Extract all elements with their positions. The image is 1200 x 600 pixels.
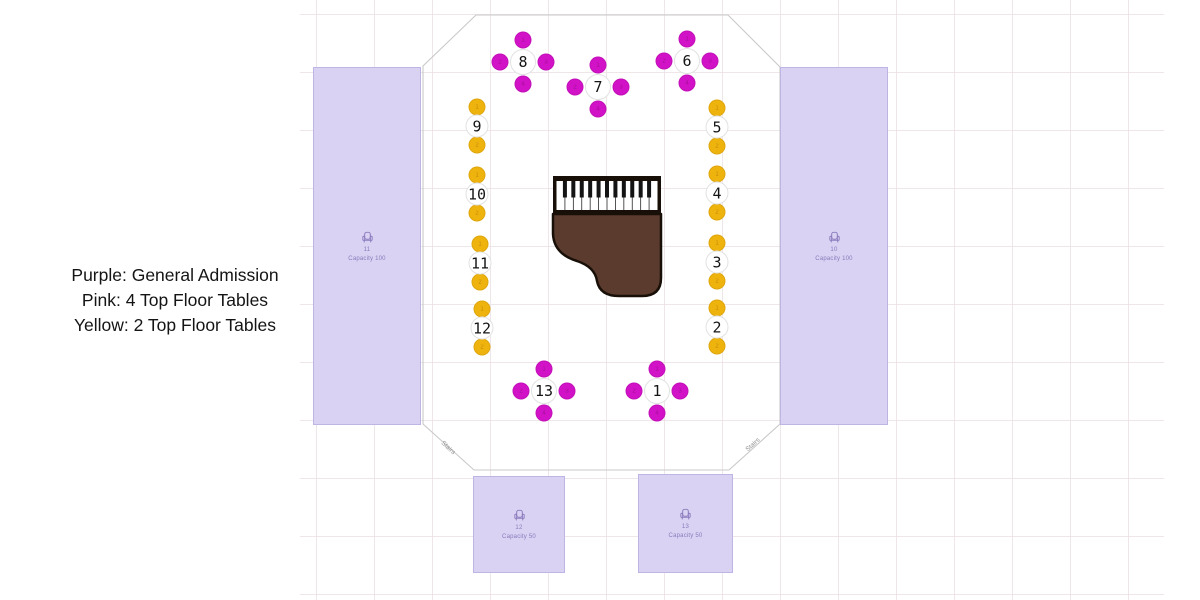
seat-number: 2	[715, 343, 718, 349]
seat-number: 2	[662, 58, 665, 64]
chair-seat[interactable]: 2	[567, 79, 584, 96]
seat-number: 2	[498, 59, 501, 65]
chair-seat[interactable]: 2	[709, 273, 726, 290]
table-circle: 3	[706, 251, 729, 274]
table-number: 10	[468, 185, 486, 203]
seat-number: 3	[678, 388, 681, 394]
seat-number: 1	[715, 305, 718, 311]
chair-seat[interactable]: 4	[679, 75, 696, 92]
seat-number: 1	[478, 241, 481, 247]
chair-seat[interactable]: 1	[469, 167, 486, 184]
seat-number: 3	[708, 58, 711, 64]
table-circle: 5	[706, 116, 729, 139]
venue-map-canvas: Purple: General Admission Pink: 4 Top Fl…	[0, 0, 1200, 600]
table-circle: 7	[585, 74, 611, 100]
table-circle: 9	[466, 115, 489, 138]
table-circle: 6	[674, 48, 700, 74]
seat-number: 2	[573, 84, 576, 90]
seat-number: 2	[715, 143, 718, 149]
chair-seat[interactable]: 1	[469, 99, 486, 116]
chair-seat[interactable]: 3	[672, 383, 689, 400]
seat-number: 1	[715, 105, 718, 111]
seat-number: 1	[480, 306, 483, 312]
table-number: 8	[518, 53, 527, 71]
chair-seat[interactable]: 2	[472, 274, 489, 291]
seat-number: 1	[715, 171, 718, 177]
chair-seat[interactable]: 2	[492, 54, 509, 71]
table-number: 12	[473, 319, 491, 337]
seat-number: 3	[565, 388, 568, 394]
chair-seat[interactable]: 4	[515, 76, 532, 93]
chair-seat[interactable]: 1	[649, 361, 666, 378]
table-circle: 11	[469, 252, 492, 275]
chair-seat[interactable]: 2	[626, 383, 643, 400]
seat-number: 1	[685, 36, 688, 42]
seat-number: 1	[521, 37, 524, 43]
table-number: 5	[712, 118, 721, 136]
seat-number: 3	[544, 59, 547, 65]
chair-seat[interactable]: 4	[536, 405, 553, 422]
chair-seat[interactable]: 3	[702, 53, 719, 70]
chair-seat[interactable]: 2	[709, 204, 726, 221]
seat-number: 2	[632, 388, 635, 394]
chair-seat[interactable]: 2	[656, 53, 673, 70]
chair-seat[interactable]: 3	[538, 54, 555, 71]
chair-seat[interactable]: 1	[590, 57, 607, 74]
table-number: 2	[712, 318, 721, 336]
table-number: 9	[472, 117, 481, 135]
seat-number: 2	[519, 388, 522, 394]
chair-seat[interactable]: 2	[709, 138, 726, 155]
chair-seat[interactable]: 3	[559, 383, 576, 400]
table-circle: 13	[531, 378, 557, 404]
chair-seat[interactable]: 1	[536, 361, 553, 378]
chair-seat[interactable]: 1	[472, 236, 489, 253]
seat-number: 4	[596, 106, 599, 112]
chair-seat[interactable]: 2	[513, 383, 530, 400]
seat-number: 1	[542, 366, 545, 372]
seat-number: 1	[475, 172, 478, 178]
chair-seat[interactable]: 2	[474, 339, 491, 356]
table-number: 4	[712, 184, 721, 202]
seat-number: 2	[715, 278, 718, 284]
chair-seat[interactable]: 1	[709, 235, 726, 252]
chair-seat[interactable]: 1	[474, 301, 491, 318]
table-circle: 4	[706, 182, 729, 205]
table-number: 11	[471, 254, 489, 272]
table-circle: 2	[706, 316, 729, 339]
chair-seat[interactable]: 4	[590, 101, 607, 118]
chair-seat[interactable]: 1	[709, 166, 726, 183]
seat-number: 1	[715, 240, 718, 246]
table-number: 13	[535, 382, 553, 400]
table-circle: 10	[466, 183, 489, 206]
table-number: 7	[593, 78, 602, 96]
chair-seat[interactable]: 1	[515, 32, 532, 49]
chair-seat[interactable]: 1	[709, 300, 726, 317]
table-number: 1	[652, 382, 661, 400]
seat-number: 4	[542, 410, 545, 416]
chair-seat[interactable]: 2	[709, 338, 726, 355]
seat-number: 2	[480, 344, 483, 350]
seat-map-tables: 1234112212312412512346123471234812912101…	[0, 0, 1200, 600]
seat-number: 1	[655, 366, 658, 372]
seat-number: 4	[521, 81, 524, 87]
table-circle: 1	[644, 378, 670, 404]
seat-number: 2	[475, 142, 478, 148]
chair-seat[interactable]: 1	[709, 100, 726, 117]
chair-seat[interactable]: 1	[679, 31, 696, 48]
seat-number: 2	[715, 209, 718, 215]
chair-seat[interactable]: 2	[469, 205, 486, 222]
seat-number: 2	[478, 279, 481, 285]
table-number: 6	[682, 52, 691, 70]
chair-seat[interactable]: 4	[649, 405, 666, 422]
table-circle: 12	[471, 317, 494, 340]
table-number: 3	[712, 253, 721, 271]
seat-number: 1	[475, 104, 478, 110]
chair-seat[interactable]: 3	[613, 79, 630, 96]
seat-number: 2	[475, 210, 478, 216]
chair-seat[interactable]: 2	[469, 137, 486, 154]
seat-number: 4	[655, 410, 658, 416]
table-circle: 8	[510, 49, 536, 75]
seat-number: 4	[685, 80, 688, 86]
seat-number: 1	[596, 62, 599, 68]
seat-number: 3	[619, 84, 622, 90]
